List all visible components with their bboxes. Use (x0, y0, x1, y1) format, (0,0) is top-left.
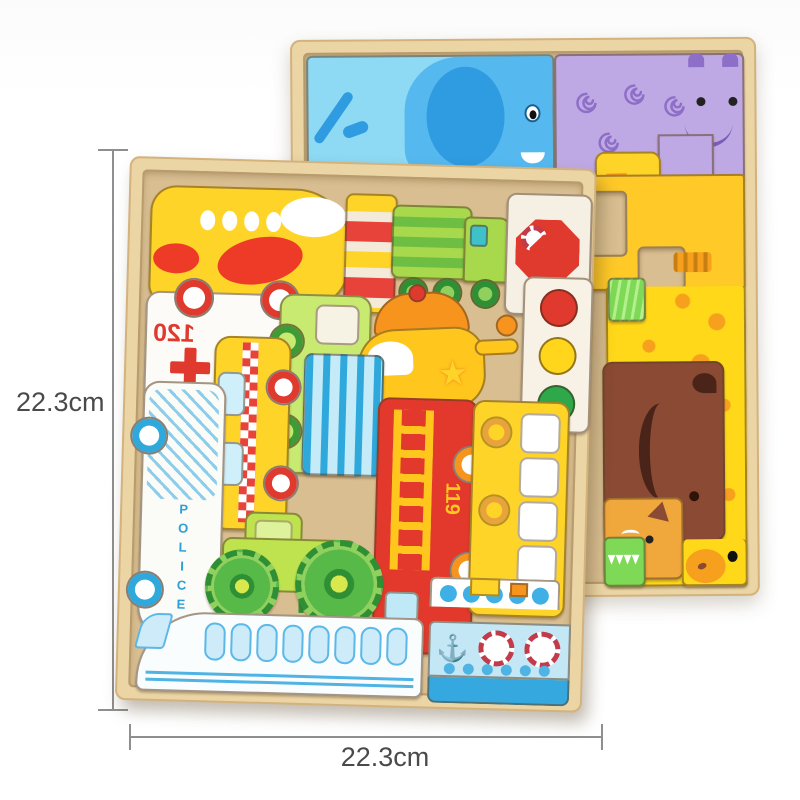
bus-window (517, 501, 558, 542)
dimension-cap (98, 149, 128, 151)
ship-hull (427, 677, 570, 707)
helicopter-tail (474, 338, 519, 356)
airplane-window (244, 211, 260, 231)
crocodile-teeth (608, 555, 640, 565)
bus-window (519, 457, 560, 498)
anchor-icon: ⚓ (436, 635, 469, 662)
bus-wheel (478, 494, 511, 527)
bus-window (520, 413, 561, 454)
tail-rotor-icon (495, 314, 518, 337)
airplane-window (222, 211, 238, 231)
dimension-cap (601, 724, 603, 750)
ship-funnel (510, 583, 528, 597)
giraffe-eye (728, 551, 738, 562)
yellow-light (538, 336, 577, 375)
porthole-dot (482, 664, 493, 675)
elephant-pupil (529, 110, 536, 119)
taxi-checker-stripe (238, 342, 259, 522)
vehicle-puzzle-board: STOP 120 ★ (115, 156, 597, 713)
life-ring-icon (524, 631, 561, 668)
giraffe-hoof (673, 252, 711, 272)
truck-window (470, 225, 489, 247)
product-photo: STOP 120 ★ (0, 0, 800, 800)
police-text: POLICE (173, 501, 191, 621)
train-window (282, 624, 304, 663)
truck-cargo (391, 204, 473, 280)
porthole-dot (501, 665, 512, 676)
porthole-dot (520, 665, 531, 676)
grass-piece (608, 278, 646, 322)
porthole-dot (444, 663, 455, 674)
ambulance-wheel (174, 277, 215, 318)
height-label: 22.3cm (16, 387, 105, 418)
train-window (334, 626, 356, 665)
bear-mouth (639, 403, 684, 499)
elephant-ear (426, 67, 505, 168)
airplane-window (200, 210, 216, 230)
width-label: 22.3cm (300, 742, 470, 773)
stop-text: STOP (534, 250, 572, 266)
bear-eye (689, 491, 699, 501)
bus-wheel (480, 416, 513, 449)
red-light (539, 289, 578, 328)
porthole-dot (463, 663, 474, 674)
ship-hull-upper: ⚓ (428, 621, 572, 681)
fox-eye (645, 535, 653, 543)
train-window (256, 624, 278, 663)
giraffe-head-piece (681, 539, 747, 586)
crocodile-piece (603, 537, 645, 587)
life-ring-icon (478, 630, 515, 667)
airplane-tail (153, 243, 200, 274)
fire-ladder (390, 409, 434, 570)
fox-ear (647, 499, 673, 522)
train-window (204, 622, 226, 661)
truck-cab (463, 216, 511, 283)
width-dimension-line (130, 736, 602, 738)
tractor-piece (202, 510, 381, 627)
train-window (386, 627, 408, 666)
hippo-ear (722, 53, 738, 67)
blue-striped-block-piece (301, 353, 384, 477)
porthole-dot (539, 666, 550, 677)
ship-piece: ⚓ (427, 577, 572, 699)
star-icon: ★ (437, 356, 469, 391)
elephant-trunk (341, 119, 370, 139)
fire-truck-number: 119 (440, 482, 464, 515)
train-window (360, 627, 382, 666)
stop-octagon-ring: STOP (521, 225, 548, 252)
porthole-icon (440, 584, 457, 601)
bullet-train-piece (135, 610, 424, 698)
bear-ear (692, 373, 716, 393)
train-window (230, 623, 252, 662)
hippo-ear (688, 53, 704, 67)
police-wheel (125, 570, 164, 609)
airplane-wing (214, 230, 307, 291)
dimension-cap (129, 724, 131, 750)
hippo-eye (728, 97, 737, 106)
hippo-eye (696, 97, 705, 106)
stop-octagon-inner: STOP (529, 234, 576, 281)
stop-octagon: STOP (515, 219, 581, 285)
train-window (308, 625, 330, 664)
airplane-window (266, 212, 282, 232)
dimension-cap (98, 709, 128, 711)
ship-flag (470, 578, 500, 597)
porthole-icon (532, 587, 549, 604)
height-dimension-line (112, 150, 114, 710)
ambulance-number: 120 (153, 319, 196, 349)
